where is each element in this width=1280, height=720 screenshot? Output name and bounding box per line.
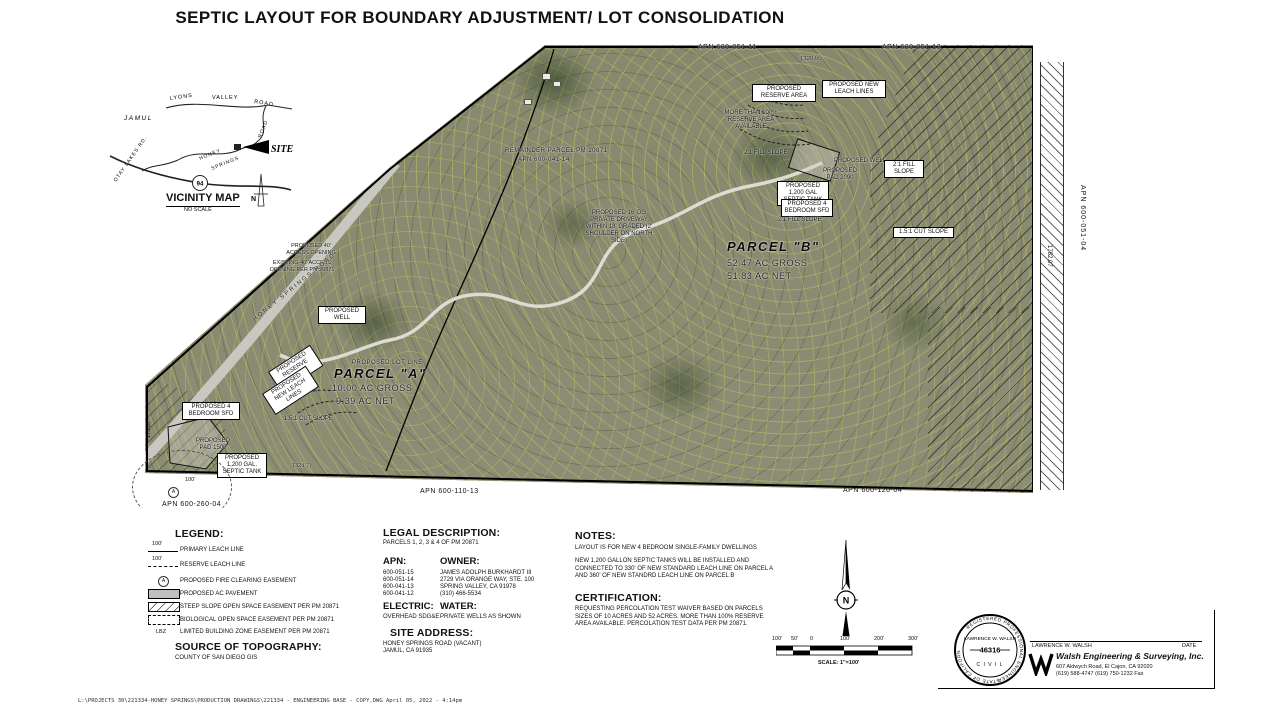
legend-item-5: BIOLOGICAL OPEN SPACE EASEMENT PER PM 20… — [180, 617, 334, 625]
dimension-right: 1782.07 — [1045, 245, 1052, 267]
scale-label-4: 200' — [874, 636, 884, 643]
callout-sfd-a: PROPOSED 4 BEDROOM SFD — [182, 402, 240, 420]
callout-reserve-area-b: PROPOSED RESERVE AREA — [752, 84, 816, 102]
remainder-apn-label: APN 600-041-14 — [518, 157, 570, 164]
vicinity-noscale: NO SCALE — [184, 207, 212, 214]
callout-cut-slope-b: 1.5:1 CUT SLOPE — [893, 227, 954, 238]
firm-phone: (619) 588-4747 (619) 750-1232 Fax — [1056, 671, 1143, 678]
fill-slope-left-label: 2:1 FILL SLOPE — [744, 150, 787, 157]
site-address-line-1: JAMUL, CA 91935 — [383, 648, 432, 656]
callout-fill-slope-right: 2:1 FILL SLOPE — [884, 160, 924, 178]
signature-line — [1030, 641, 1202, 642]
parcel-b-net: 51.83 AC NET — [727, 271, 792, 281]
water-heading: WATER: — [440, 602, 477, 613]
file-path-footer: L:\PROJECTS 30\221334-HONEY SPRINGS\PROD… — [78, 698, 462, 704]
apn-number-3: 600-041-12 — [383, 591, 414, 599]
electric-heading: ELECTRIC: — [383, 602, 434, 613]
legend-tag-1: 100' — [152, 556, 162, 563]
plan-sheet: { "title": "SEPTIC LAYOUT FOR BOUNDARY A… — [0, 0, 1280, 720]
firm-address: 607 Aldwych Road, El Cajon, CA 92020 — [1056, 664, 1153, 671]
apn-top-left: APN 600-051-11 — [698, 44, 757, 52]
callout-well-a: PROPOSED WELL — [318, 306, 366, 324]
legend-item-3: PROPOSED AC PAVEMENT — [180, 591, 257, 599]
fire-radius-label: 100' — [185, 477, 195, 484]
vicinity-map: LYONS VALLEY ROAD JAMUL HONEY SPRINGS RO… — [108, 86, 293, 208]
fill-slope-bottom-label: 2:1 FILL SLOPE — [778, 217, 821, 224]
sheet-title: SEPTIC LAYOUT FOR BOUNDARY ADJUSTMENT/ L… — [0, 8, 960, 28]
callout-sfd-b: PROPOSED 4 BEDROOM SFD — [781, 199, 833, 217]
notes-line1: LAYOUT IS FOR NEW 4 BEDROOM SINGLE-FAMIL… — [575, 545, 785, 553]
building — [524, 99, 532, 105]
site-marker — [234, 144, 241, 150]
legal-heading: LEGAL DESCRIPTION: — [383, 527, 500, 539]
notes-heading: NOTES: — [575, 530, 616, 542]
valley-label: VALLEY — [212, 95, 238, 101]
topography-body: COUNTY OF SAN DIEGO GIS — [175, 655, 257, 663]
scale-label-0: 100' — [772, 636, 782, 643]
apn-top-right: APN 600-051-13 — [882, 44, 941, 52]
apn-bottom-mid: APN 600-110-13 — [420, 488, 479, 496]
apn-heading: APN: — [383, 557, 406, 568]
route-94-number: 94 — [197, 182, 204, 188]
scale-label-5: 300' — [908, 636, 918, 643]
lbz-symbol: LBZ — [156, 629, 166, 636]
notes-line2: NEW 1,200 GALLON SEPTIC TANKS WILL BE IN… — [575, 558, 775, 581]
dimension-bottom: 1324.77 — [292, 462, 312, 470]
apn-bottom-right: APN 600-120-04 — [843, 487, 902, 495]
north-arrow: N — [833, 538, 859, 638]
steep-slope-sample — [148, 602, 180, 612]
pad-b-label: PROPOSED PAD 2090 — [820, 168, 860, 182]
parcel-a-name: PARCEL "A" — [334, 367, 427, 382]
certification-heading: CERTIFICATION: — [575, 592, 662, 604]
dimension-top: 1320.60 — [800, 56, 822, 64]
driveway-mid-label: PROPOSED 16' DG PRIVATE DRIVEWAY WITHIN … — [583, 210, 655, 244]
fire-easement-symbol: A — [168, 487, 179, 498]
owner-heading: OWNER: — [440, 557, 480, 568]
callout-leach-lines-b: PROPOSED NEW LEACH LINES — [822, 80, 886, 98]
lyons-label: LYONS — [169, 93, 193, 102]
building — [553, 81, 561, 87]
well-b-label: PROPOSED WELL — [834, 158, 886, 165]
water-value: PRIVATE WELLS AS SHOWN — [440, 614, 521, 622]
north-arrow-n: N — [843, 596, 850, 606]
open-space-strip — [1040, 62, 1064, 490]
scale-label-1: 50' — [791, 636, 798, 643]
primary-leach-sample — [148, 551, 178, 552]
reserve-leach-sample — [148, 566, 178, 567]
parcel-b-gross: 52.47 AC GROSS — [727, 258, 807, 268]
jamul-label: JAMUL — [123, 115, 153, 122]
more-reserve-label: MORE THAN 100% RESERVE AREA AVAILABLE — [722, 110, 780, 131]
dimension-left: 173.07 — [146, 421, 153, 438]
apn-label-right: APN 600-051-04 — [1078, 185, 1086, 251]
biological-sample — [148, 615, 180, 625]
springs-label: SPRINGS — [211, 155, 241, 172]
legend-item-1: RESERVE LEACH LINE — [180, 562, 245, 570]
parcel-b-name: PARCEL "B" — [727, 240, 820, 255]
honey-label: HONEY — [199, 148, 222, 162]
legend-item-6: LIMITED BUILDING ZONE EASEMENT PER PM 20… — [180, 629, 330, 637]
topography-heading: SOURCE OF TOPOGRAPHY: — [175, 641, 322, 653]
vicinity-north-n: N — [251, 196, 256, 203]
legend-item-0: PRIMARY LEACH LINE — [180, 547, 244, 555]
scale-label-2: 0 — [810, 636, 813, 643]
legend-item-2: PROPOSED FIRE CLEARING EASEMENT — [180, 578, 296, 586]
ac-pavement-sample — [148, 589, 180, 599]
parcel-a-gross: 10.00 AC GROSS — [332, 383, 412, 393]
electric-value: OVERHEAD SDG&E — [383, 614, 439, 622]
legal-body: PARCELS 1, 2, 3 & 4 OF PM 20871 — [383, 540, 479, 548]
building — [542, 73, 551, 80]
certification-body: REQUESTING PERCOLATION TEST WAIVER BASED… — [575, 606, 765, 629]
firm-date-label: DATE — [1182, 643, 1196, 650]
vicinity-north-arrow — [258, 174, 264, 206]
legend-heading: LEGEND: — [175, 528, 224, 540]
proposed-lot-line-path — [386, 49, 554, 471]
site-address-heading: SITE ADDRESS: — [390, 627, 473, 639]
road2-label: ROAD — [257, 119, 269, 138]
legend-item-4: STEEP SLOPE OPEN SPACE EASEMENT PER PM 2… — [180, 604, 339, 612]
fire-easement-legend-symbol: A — [158, 576, 169, 587]
cut-slope-a-label: 1.5:1 CUT SLOPE — [284, 416, 333, 423]
scale-bar — [776, 645, 916, 657]
scale-label-3: 100' — [840, 636, 850, 643]
pad-a-label: PROPOSED PAD 1500 — [192, 438, 234, 452]
walsh-logo — [1028, 652, 1054, 676]
vicinity-title: VICINITY MAP — [166, 192, 240, 207]
fire-clearing-arc — [132, 450, 232, 524]
scale-caption: SCALE: 1"=100' — [818, 660, 859, 667]
firm-engineer-name: LAWRENCE W. WALSH — [1032, 643, 1092, 650]
firm-name: Walsh Engineering & Surveying, Inc. — [1056, 652, 1204, 662]
remainder-parcel-label: REMAINDER PARCEL PM 20871 — [505, 148, 608, 155]
site-arrow — [243, 140, 269, 154]
owner-line-3: (310) 466-5534 — [440, 591, 481, 599]
parcel-a-net: 9.39 AC NET — [336, 396, 395, 406]
site-label: SITE — [271, 144, 293, 155]
legend-tag-0: 100' — [152, 541, 162, 548]
